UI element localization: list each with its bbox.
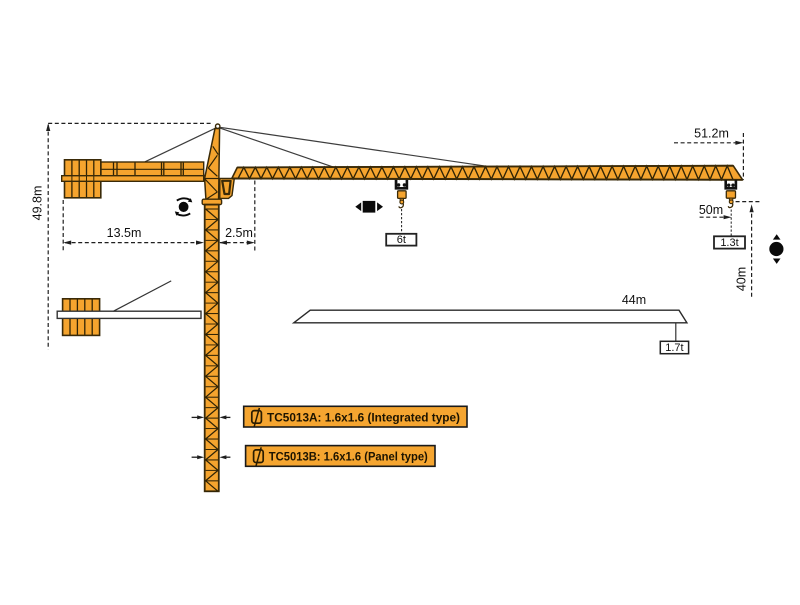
svg-text:TC5013A: 1.6x1.6 (Integrated: TC5013A: 1.6x1.6 (Integrated type) [267,410,460,424]
svg-text:TC5013B: 1.6x1.6 (Panel type: TC5013B: 1.6x1.6 (Panel type) [269,450,428,464]
svg-text:1.3t: 1.3t [720,237,738,249]
svg-text:1.7t: 1.7t [665,342,683,354]
svg-text:51.2m: 51.2m [694,126,729,140]
svg-text:2.5m: 2.5m [225,226,253,240]
svg-text:13.5m: 13.5m [107,226,142,240]
svg-text:44m: 44m [622,293,646,307]
svg-text:6t: 6t [397,234,406,246]
svg-text:50m: 50m [699,203,723,217]
svg-text:40m: 40m [735,267,749,291]
svg-text:49.8m: 49.8m [31,186,45,221]
